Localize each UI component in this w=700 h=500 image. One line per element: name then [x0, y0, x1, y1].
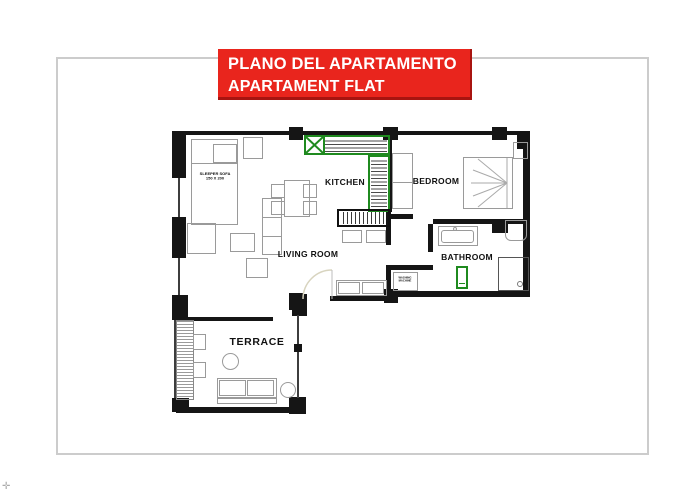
terrace-round-table	[222, 353, 239, 370]
kitchen-counter-right	[368, 155, 390, 212]
terrace-sofa-base	[217, 398, 277, 404]
wall-bathroom-left	[428, 224, 433, 252]
room-label-living: LIVING ROOM	[278, 249, 338, 259]
sink-x-icon	[306, 137, 323, 153]
sofa-secondary-line	[263, 236, 281, 237]
wall-nook-top	[386, 265, 433, 270]
wardrobe-line	[393, 182, 412, 183]
towel-radiator	[456, 266, 468, 289]
planter-box-1	[193, 334, 206, 350]
wall-bottom-right-section	[384, 291, 530, 297]
armchair-2	[230, 233, 255, 252]
title-line-2: APARTAMENT FLAT	[228, 76, 462, 98]
wall-bedroom-bottom-left	[388, 214, 413, 219]
washing-machine-label: WASHING MACHINE	[399, 276, 412, 282]
sofa-secondary	[262, 198, 282, 255]
column-terrace-bottom-right	[289, 397, 306, 414]
wall-left-thin-2	[178, 258, 180, 296]
terrace-round-table-2	[280, 382, 296, 398]
title-banner: PLANO DEL APARTAMENTO APARTAMENT FLAT	[218, 49, 472, 100]
dining-chair-1	[271, 184, 285, 198]
towel-radiator-line	[459, 283, 465, 284]
column-terrace-top-left	[172, 295, 188, 320]
shower	[498, 257, 529, 291]
wall-terrace-top	[188, 317, 273, 321]
page-frame	[56, 57, 649, 455]
wardrobe	[392, 153, 413, 209]
bench	[336, 280, 387, 296]
wall-left-thin-1	[178, 178, 180, 218]
room-label-terrace: TERRACE	[230, 336, 285, 348]
sofa-secondary-line	[263, 217, 281, 218]
sleeper-sofa-label: SLEEPER SOFA 150 X 200	[200, 172, 231, 181]
sofa-divider-line	[192, 163, 237, 164]
kitchen-sink-unit	[304, 135, 325, 155]
terrace-planter-strip	[176, 320, 194, 400]
bar-stool-2	[366, 230, 386, 243]
sofa-cushion	[213, 144, 237, 163]
washbasin-faucet	[453, 227, 457, 231]
bed-blanket-lines	[464, 158, 512, 208]
planter-box-2	[193, 362, 206, 378]
bench-cushion	[338, 282, 360, 294]
sleeper-sofa	[191, 139, 238, 225]
wall-terrace-right-thin	[297, 315, 299, 398]
kitchen-bar	[337, 209, 390, 227]
bench-cushion	[362, 282, 384, 294]
side-table-2	[246, 258, 268, 278]
wall-bedroom-bottom	[433, 219, 493, 224]
terrace-sofa-cushion	[247, 380, 274, 396]
wall-terrace-bottom	[176, 407, 293, 413]
terrace-sofa	[217, 378, 277, 398]
wall-left-mid	[172, 217, 186, 258]
bed	[463, 157, 513, 209]
corner-mark: ✛	[2, 481, 10, 492]
bar-stool-1	[342, 230, 362, 243]
wall-living-bottom	[330, 296, 396, 301]
washbasin-bowl	[441, 230, 474, 243]
room-label-kitchen: KITCHEN	[325, 177, 365, 187]
shower-drain	[517, 281, 523, 287]
washbasin	[438, 226, 478, 246]
column-top-3	[492, 127, 507, 140]
wall-terrace-right-tick	[294, 344, 302, 352]
room-label-bedroom: BEDROOM	[413, 176, 460, 186]
terrace-sofa-cushion	[219, 380, 246, 396]
armchair-left	[187, 223, 216, 254]
terrace-door-arc	[302, 269, 334, 301]
column-top-1	[289, 127, 303, 140]
wall-left-upper	[172, 131, 186, 178]
nightstand	[513, 142, 528, 159]
room-label-bathroom: BATHROOM	[441, 252, 493, 262]
side-table	[243, 137, 263, 159]
title-line-1: PLANO DEL APARTAMENTO	[228, 54, 462, 76]
toilet	[505, 220, 527, 241]
dining-table	[284, 180, 310, 217]
